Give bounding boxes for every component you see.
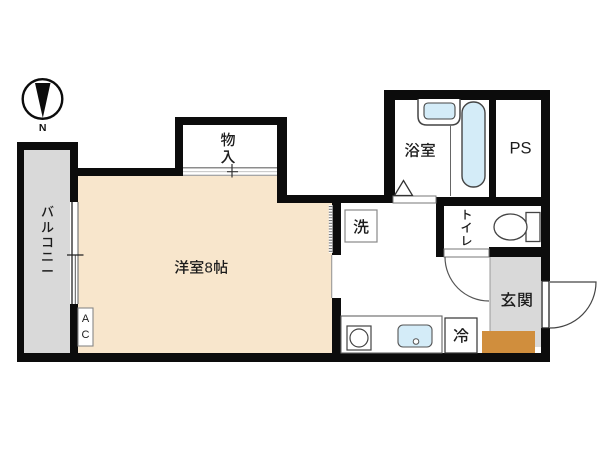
svg-text:C: C <box>82 329 90 341</box>
svg-text:PS: PS <box>509 140 531 158</box>
svg-text:A: A <box>82 313 90 325</box>
svg-text:N: N <box>39 122 47 134</box>
svg-text:8: 8 <box>205 259 213 276</box>
